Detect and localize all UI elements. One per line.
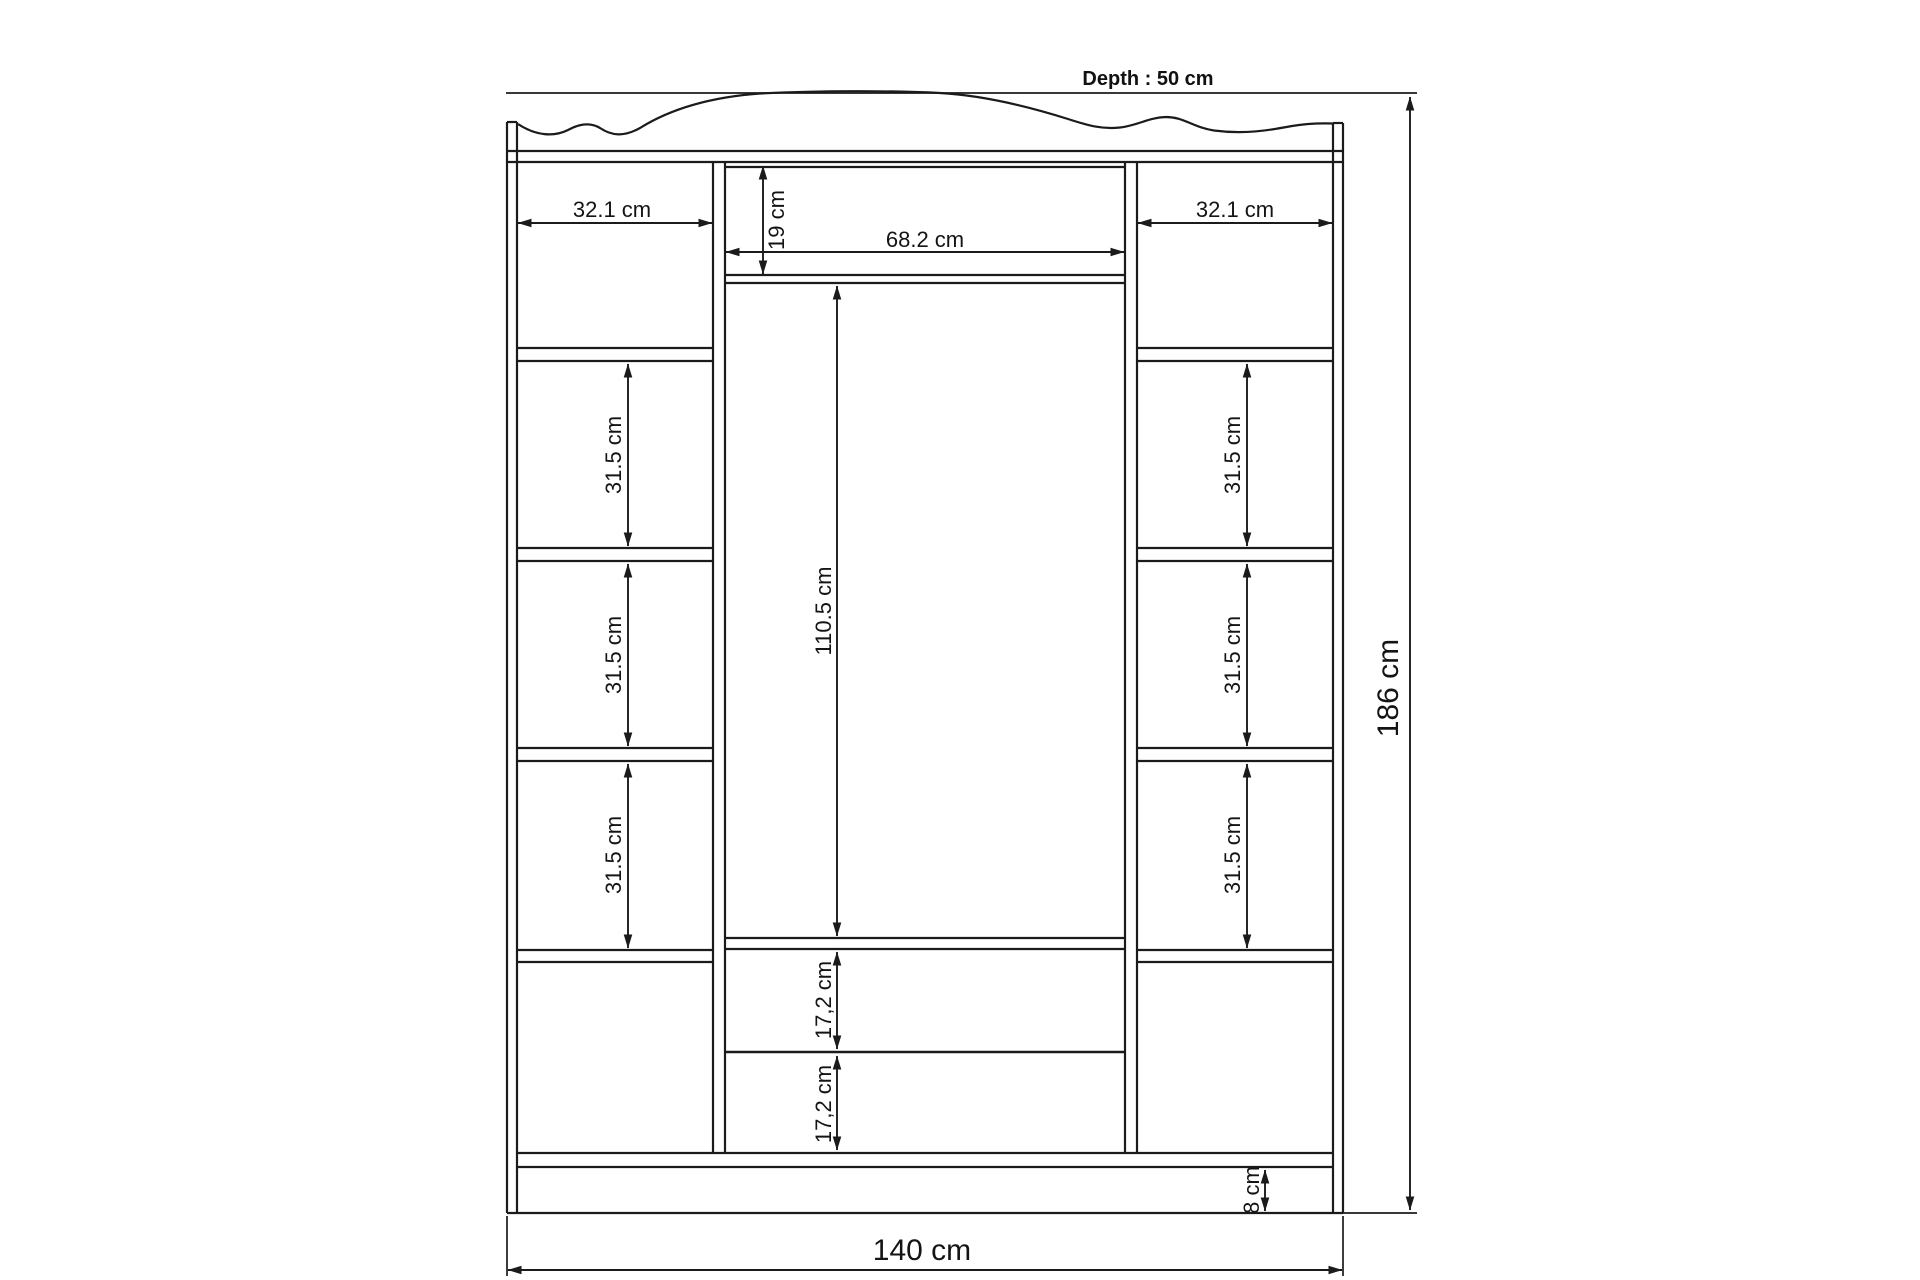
crown-wave <box>518 91 1333 134</box>
right-shelf-2-label: 31.5 cm <box>1220 416 1245 494</box>
center-section-shelves <box>725 167 1125 1052</box>
left-partition <box>713 162 725 1153</box>
wardrobe-dimension-drawing: Depth : 50 cm 140 cm 186 cm 32.1 cm 32.1… <box>0 0 1920 1280</box>
top-compartment-label: 19 cm <box>764 190 789 250</box>
drawer-1-label: 17,2 cm <box>811 961 836 1039</box>
technical-drawing-page: Depth : 50 cm 140 cm 186 cm 32.1 cm 32.1… <box>0 0 1920 1280</box>
door-height-label: 110.5 cm <box>811 567 836 656</box>
wardrobe-outline <box>507 91 1343 1213</box>
base-height-label: 8 cm <box>1239 1166 1264 1214</box>
dimension-labels: Depth : 50 cm 140 cm 186 cm 32.1 cm 32.1… <box>573 68 1405 1267</box>
total-width-label: 140 cm <box>873 1234 971 1267</box>
right-side-wall <box>1333 123 1343 1213</box>
bottom-panel <box>507 1153 1343 1213</box>
total-height-label: 186 cm <box>1372 639 1405 737</box>
top-panel <box>507 151 1343 162</box>
center-width-label: 68.2 cm <box>886 227 964 252</box>
right-column-width-label: 32.1 cm <box>1196 197 1274 222</box>
right-shelf-4-label: 31.5 cm <box>1220 816 1245 894</box>
left-column-width-label: 32.1 cm <box>573 197 651 222</box>
left-shelf-4-label: 31.5 cm <box>601 816 626 894</box>
dimension-lines <box>506 93 1417 1276</box>
left-shelf-3-label: 31.5 cm <box>601 616 626 694</box>
right-shelf-3-label: 31.5 cm <box>1220 616 1245 694</box>
depth-note-label: Depth : 50 cm <box>1082 68 1213 90</box>
left-shelf-2-label: 31.5 cm <box>601 416 626 494</box>
right-partition <box>1125 162 1137 1153</box>
left-side-wall <box>507 122 517 1213</box>
drawer-2-label: 17,2 cm <box>811 1065 836 1143</box>
